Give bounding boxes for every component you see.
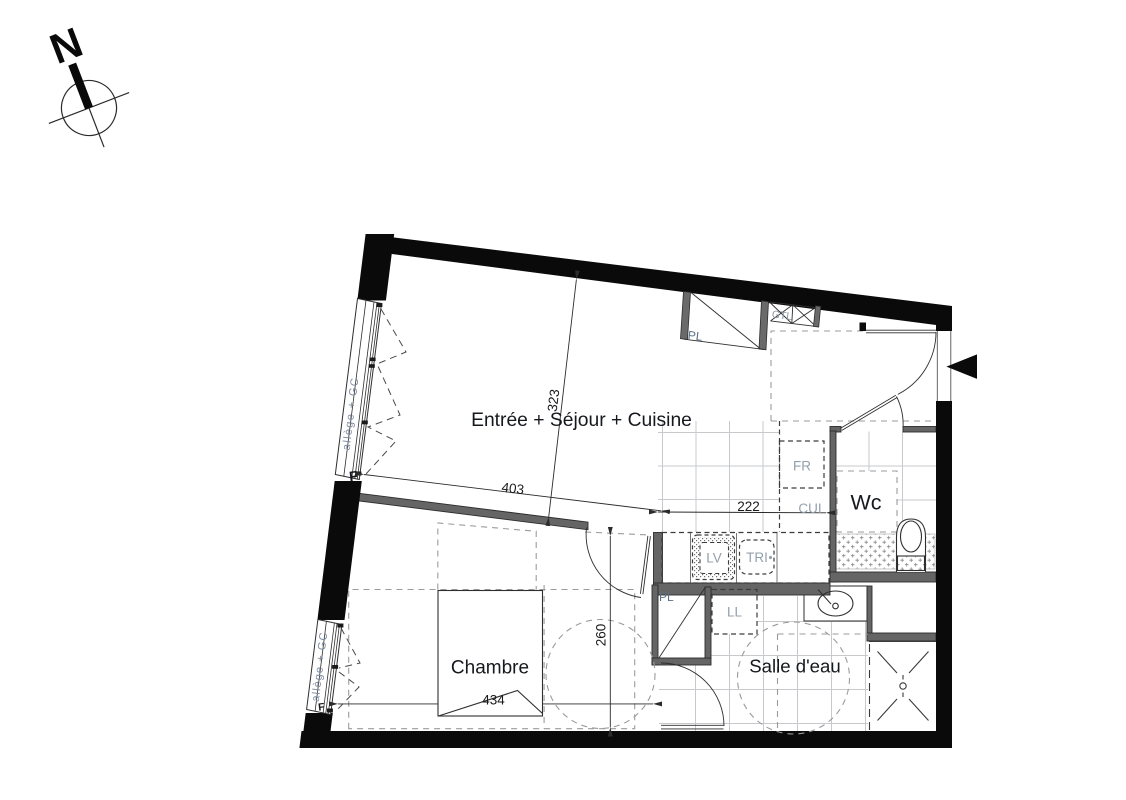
svg-text:Chambre: Chambre — [451, 658, 529, 679]
svg-text:434: 434 — [482, 693, 505, 708]
svg-text:403: 403 — [501, 480, 525, 498]
svg-text:323: 323 — [545, 388, 563, 412]
svg-text:PL: PL — [659, 590, 674, 604]
svg-text:LV: LV — [706, 551, 722, 566]
svg-text:260: 260 — [594, 624, 609, 647]
svg-text:Entrée + Séjour + Cuisine: Entrée + Séjour + Cuisine — [471, 410, 692, 431]
svg-text:CUI: CUI — [798, 501, 821, 516]
svg-text:LL: LL — [727, 605, 743, 620]
svg-text:FR: FR — [793, 459, 811, 474]
svg-text:PL: PL — [687, 328, 704, 344]
svg-text:222: 222 — [737, 499, 760, 514]
svg-text:Salle d'eau: Salle d'eau — [749, 656, 840, 677]
svg-text:TRI: TRI — [746, 550, 768, 565]
svg-text:GTL: GTL — [771, 309, 793, 323]
svg-text:Wc: Wc — [850, 491, 881, 515]
